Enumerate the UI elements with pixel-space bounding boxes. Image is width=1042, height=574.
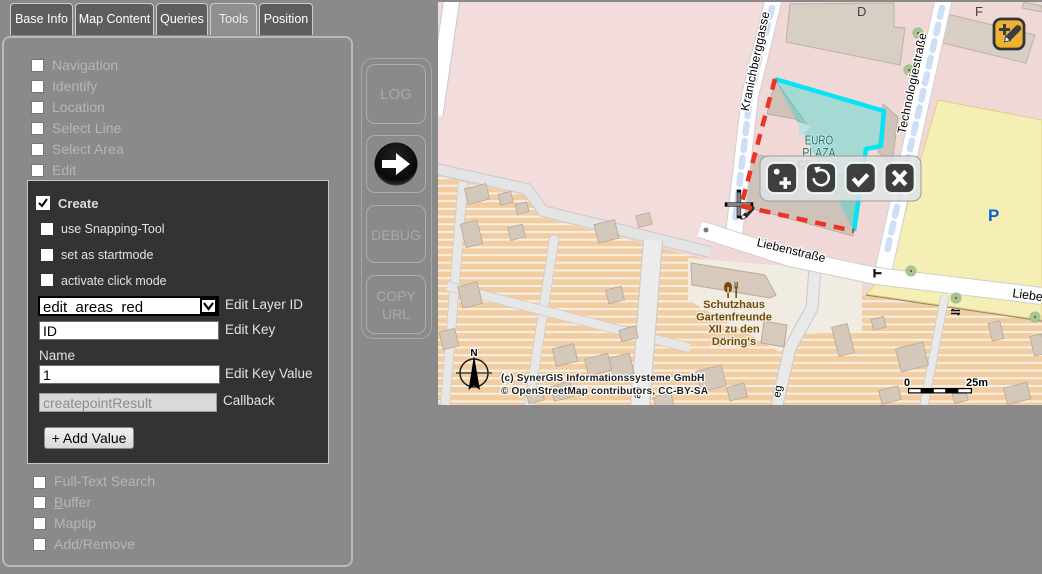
svg-text:(c) SynerGIS Informationssyste: (c) SynerGIS Informationssysteme GmbH [501, 373, 705, 384]
svg-text:0: 0 [904, 377, 910, 389]
svg-text:© OpenStreetMap contributors,: © OpenStreetMap contributors, CC-BY-SA [501, 386, 708, 397]
svg-text:Gartenfreunde: Gartenfreunde [696, 312, 772, 324]
svg-text:Schutzhaus: Schutzhaus [703, 299, 765, 311]
svg-text:D: D [857, 4, 866, 19]
svg-text:XII zu den: XII zu den [708, 324, 760, 336]
svg-text:N: N [470, 348, 477, 359]
svg-text:P: P [988, 206, 999, 225]
svg-text:eg: eg [771, 384, 785, 398]
svg-text:F: F [975, 4, 983, 19]
svg-text:Döring's: Döring's [712, 336, 756, 348]
svg-text:25m: 25m [966, 377, 988, 389]
